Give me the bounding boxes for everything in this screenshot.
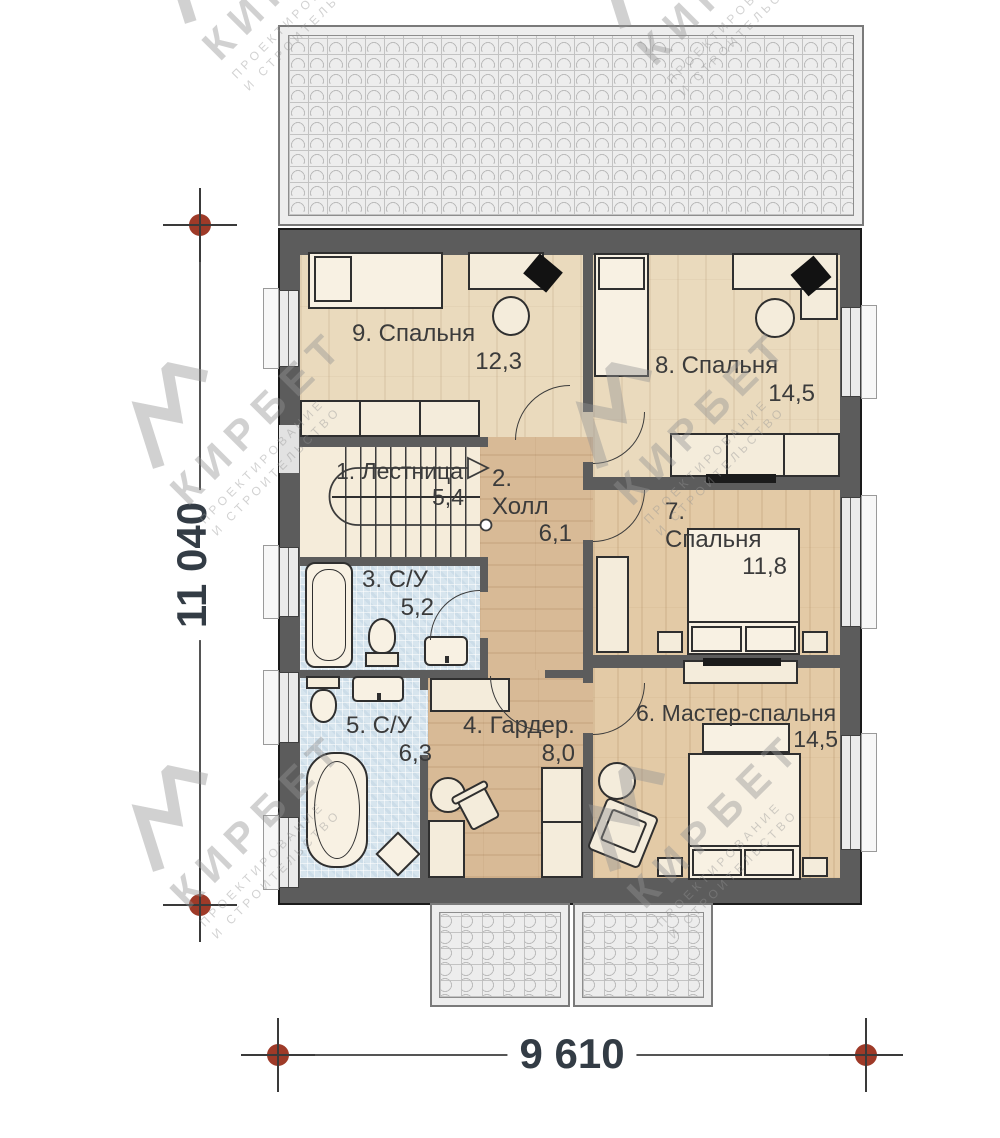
window-sill	[263, 545, 279, 619]
window-sill	[263, 288, 279, 369]
wardrobe-cabinet	[670, 433, 840, 477]
label-bedroom7: 7. Спальня 11,8	[665, 498, 787, 581]
floor-plan-canvas: 9. Спальня 12,3 8. Спальня 14,5 1. Лестн…	[0, 0, 1000, 1138]
room-name: 6. Мастер-спальня	[636, 700, 838, 726]
roof-porch-right	[573, 903, 713, 1007]
window-master	[841, 735, 861, 850]
room-area: 14,5	[636, 726, 838, 752]
window-sill	[861, 305, 877, 399]
wall-bath5-wardrobe-b	[420, 755, 428, 878]
room-area: 8,0	[463, 740, 575, 768]
window-sill	[861, 733, 877, 852]
pillow	[691, 626, 742, 652]
label-bath5: 5. С/У 6,3	[346, 712, 432, 767]
wall-center-d	[583, 733, 593, 878]
room-name: 1. Лестница	[336, 458, 464, 484]
room-area: 6,3	[346, 740, 432, 768]
room-name: 2. Холл	[492, 465, 572, 520]
window-sill	[861, 495, 877, 629]
window-bath3	[279, 547, 299, 617]
window-sill	[263, 670, 279, 745]
window-sill	[263, 815, 279, 890]
roof-porch-right-tiles	[582, 912, 704, 998]
cabinet-divider	[359, 402, 361, 435]
room-name: 4. Гардер.	[463, 712, 575, 740]
round-table	[598, 762, 636, 800]
cabinet-divider	[783, 435, 785, 475]
dimension-marker	[189, 894, 211, 916]
wardrobe-cabinet	[300, 400, 480, 437]
room-name: 9. Спальня	[352, 320, 522, 348]
toilet-tank	[306, 676, 340, 689]
nightstand	[802, 857, 828, 877]
window-bedroom9	[279, 290, 299, 367]
dimension-height-label: 11 040	[168, 490, 216, 640]
label-master: 6. Мастер-спальня 14,5	[636, 700, 838, 753]
tv-icon	[703, 658, 781, 666]
toilet-tank	[365, 652, 399, 667]
wall-bath5-wardrobe-a	[420, 676, 428, 690]
toilet	[368, 618, 396, 654]
nightstand	[657, 631, 683, 653]
cabinet-divider	[726, 435, 728, 475]
sink	[352, 676, 404, 702]
pillow	[598, 257, 645, 290]
roof-top	[278, 25, 864, 226]
room-area: 14,5	[655, 380, 815, 408]
room-name: 3. С/У	[362, 566, 434, 594]
closet	[428, 820, 465, 878]
dimension-marker	[855, 1044, 877, 1066]
wall-bath3-hall-a	[480, 557, 488, 592]
pillow	[744, 849, 794, 876]
office-chair	[755, 298, 795, 338]
closet-divider	[543, 821, 581, 823]
tv-icon	[706, 474, 776, 483]
window-stairs	[279, 425, 299, 473]
room-area: 12,3	[352, 348, 522, 376]
roof-porch-left	[430, 903, 570, 1007]
cabinet-divider	[419, 402, 421, 435]
sink	[424, 636, 468, 666]
window-bath5-lower	[279, 817, 299, 888]
label-bedroom9: 9. Спальня 12,3	[352, 320, 522, 375]
bathtub	[305, 562, 353, 668]
pillow	[745, 626, 796, 652]
room-name: 8. Спальня	[655, 352, 815, 380]
bed-edge	[689, 845, 800, 847]
dimension-width-label: 9 610	[507, 1030, 636, 1078]
wall-center-a	[583, 255, 593, 412]
room-name: 5. С/У	[346, 712, 432, 740]
wardrobe-cabinet	[596, 556, 629, 653]
room-area: 11,8	[665, 553, 787, 581]
bed-edge	[688, 621, 799, 623]
window-bath5-upper	[279, 672, 299, 743]
room-area: 5,4	[336, 484, 464, 510]
toilet	[310, 689, 337, 723]
kirbet-logo-icon	[137, 0, 269, 32]
roof-porch-left-tiles	[439, 912, 561, 998]
pillow	[692, 849, 742, 876]
label-hall: 2. Холл 6,1	[492, 465, 572, 548]
label-bedroom8: 8. Спальня 14,5	[655, 352, 815, 407]
dimension-marker	[267, 1044, 289, 1066]
label-wardrobe: 4. Гардер. 8,0	[463, 712, 575, 767]
nightstand	[802, 631, 828, 653]
window-bedroom8	[841, 307, 861, 397]
pillow	[314, 256, 352, 302]
wall-center-b	[583, 462, 593, 490]
wall-center-c	[583, 540, 593, 683]
label-bath3: 3. С/У 5,2	[362, 566, 434, 621]
label-stairs: 1. Лестница 5,4	[336, 458, 464, 511]
room-name: 7. Спальня	[665, 498, 787, 553]
dimension-marker	[189, 214, 211, 236]
roof-top-tiles	[288, 35, 854, 216]
room-area: 5,2	[362, 594, 434, 622]
room-area: 6,1	[492, 520, 572, 548]
kirbet-logo-icon	[105, 345, 237, 477]
window-bedroom7	[841, 497, 861, 627]
freestanding-bathtub	[306, 752, 368, 868]
kirbet-logo-icon	[105, 748, 237, 880]
nightstand	[657, 857, 683, 877]
wall-wardrobe-top-a	[428, 670, 488, 678]
